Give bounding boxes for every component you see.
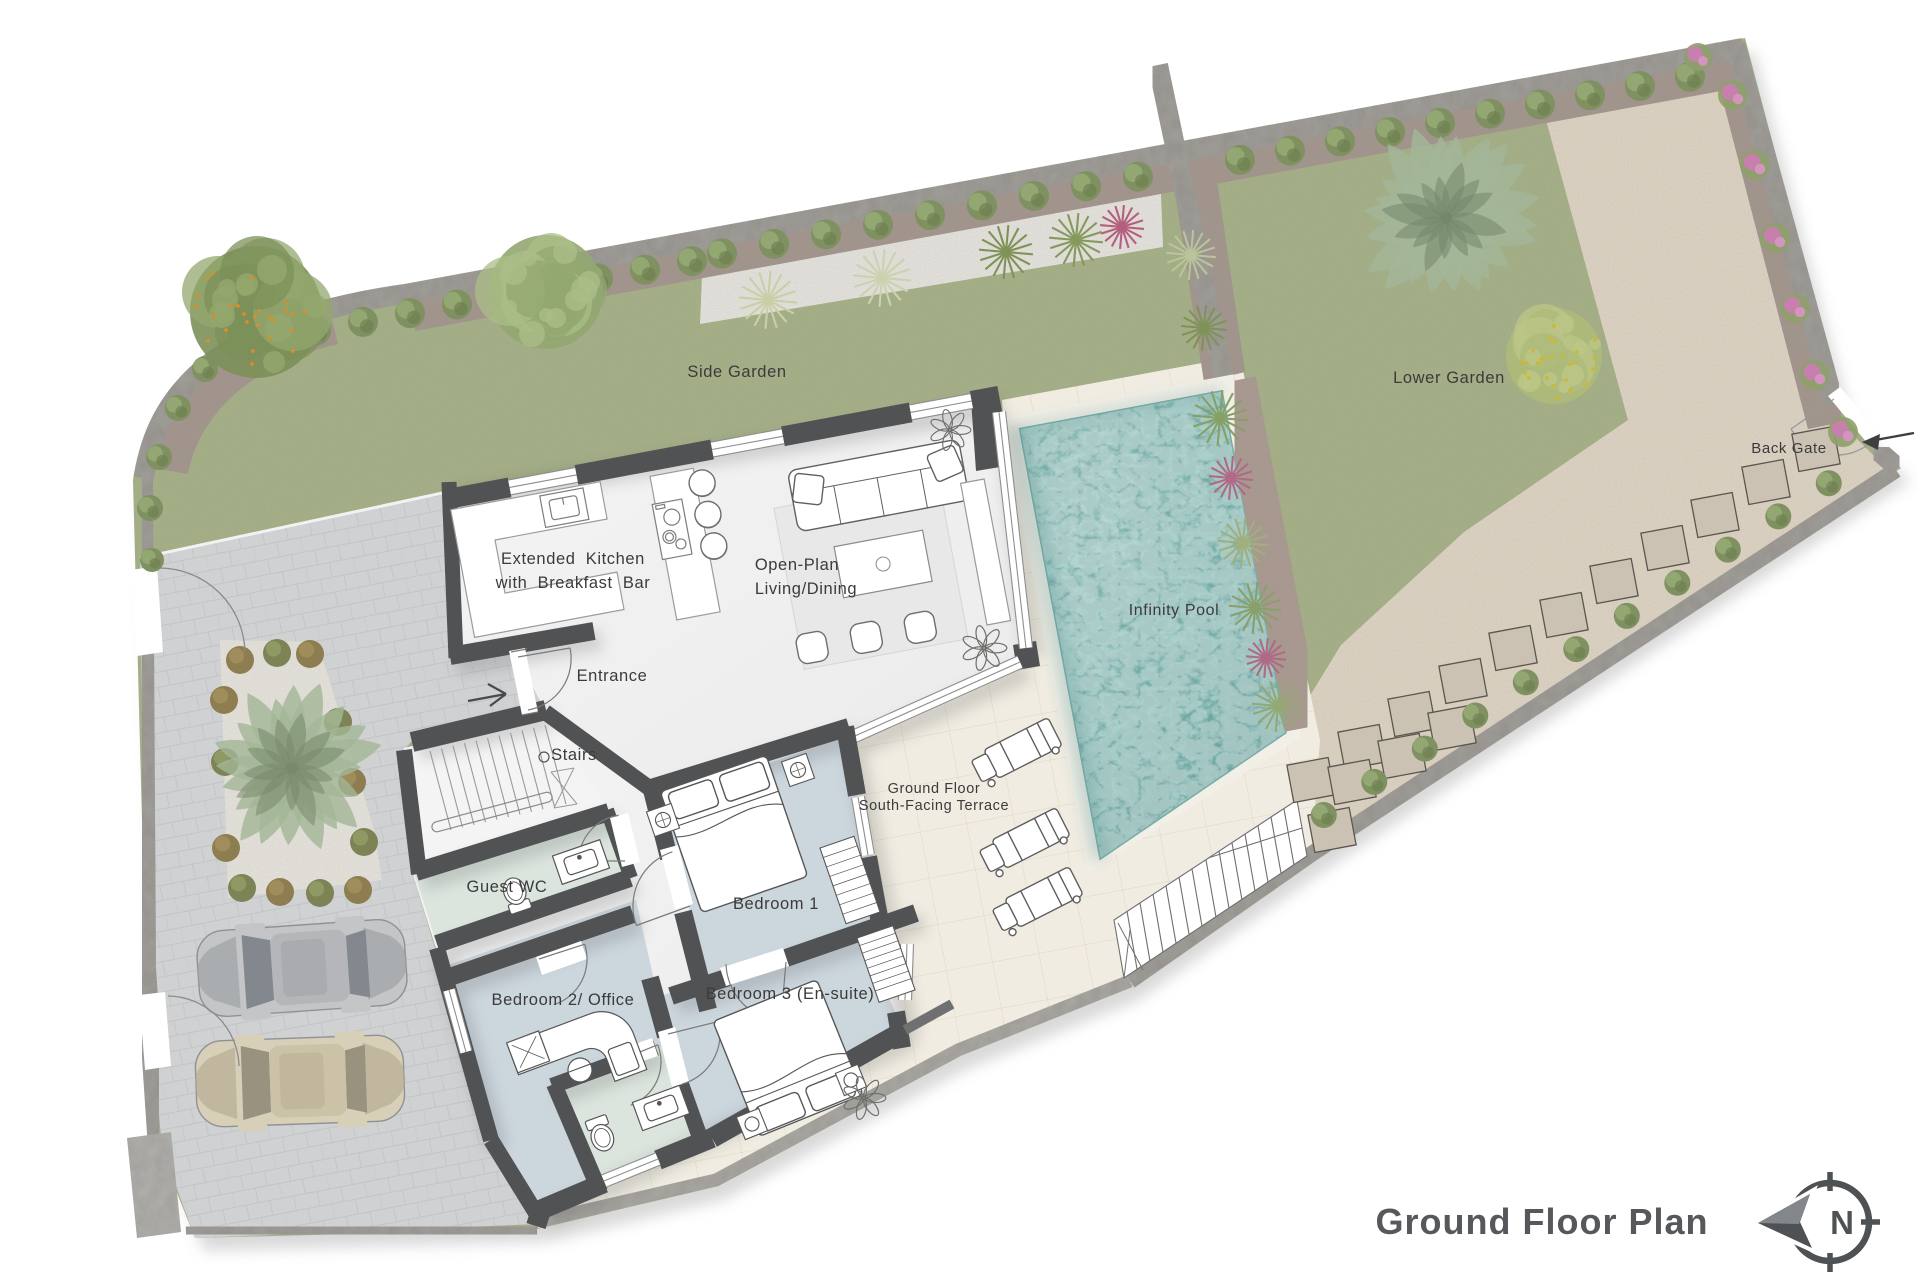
svg-text:Back Gate: Back Gate — [1751, 440, 1826, 457]
svg-text:Extended Kitchen: Extended Kitchen — [501, 550, 645, 568]
svg-text:Ground Floor: Ground Floor — [888, 781, 981, 797]
svg-text:Infinity Pool: Infinity Pool — [1129, 602, 1220, 619]
svg-text:with Breakfast Bar: with Breakfast Bar — [495, 574, 651, 592]
svg-text:Guest WC: Guest WC — [467, 878, 548, 896]
svg-text:N: N — [1830, 1204, 1854, 1241]
svg-text:Bedroom 1: Bedroom 1 — [733, 895, 819, 913]
svg-text:South-Facing Terrace: South-Facing Terrace — [859, 798, 1009, 814]
svg-text:Lower Garden: Lower Garden — [1393, 369, 1505, 387]
svg-text:Bedroom 2/ Office: Bedroom 2/ Office — [492, 991, 635, 1009]
svg-text:Entrance: Entrance — [577, 667, 648, 685]
svg-text:Open-Plan: Open-Plan — [755, 556, 839, 574]
svg-text:Bedroom 3 (En-suite): Bedroom 3 (En-suite) — [706, 985, 875, 1003]
svg-text:Living/Dining: Living/Dining — [755, 580, 857, 598]
svg-text:Ground Floor Plan: Ground Floor Plan — [1376, 1201, 1709, 1242]
svg-text:Side Garden: Side Garden — [687, 363, 786, 381]
svg-text:Stairs: Stairs — [551, 746, 597, 764]
